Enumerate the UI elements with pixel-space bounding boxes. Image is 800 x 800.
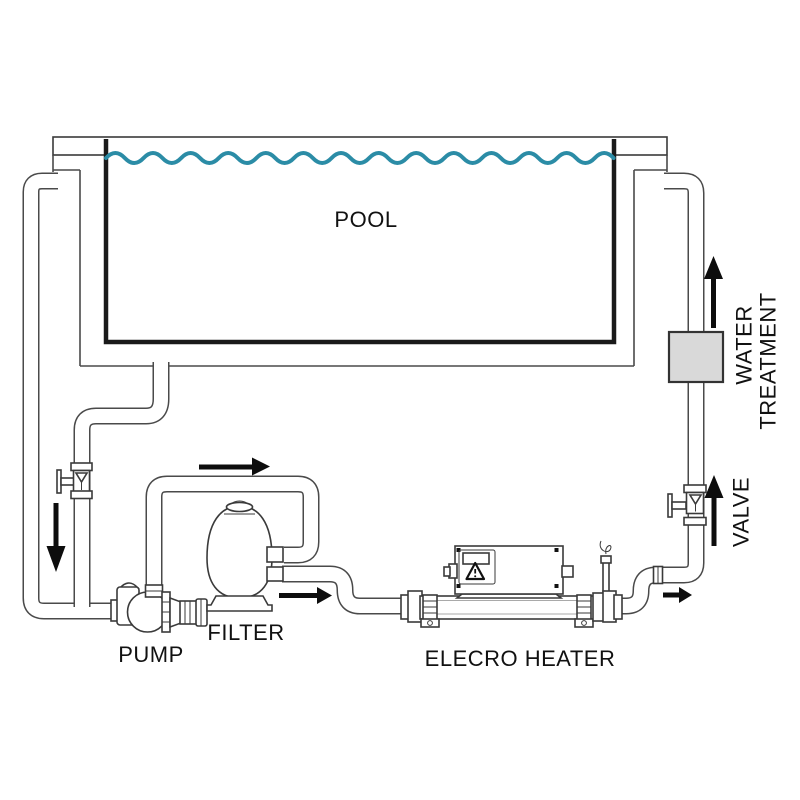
return-valve — [668, 485, 706, 525]
pump — [111, 583, 207, 632]
heater-tube — [420, 596, 595, 619]
flow-arrow-right-filter-out — [279, 587, 332, 604]
skimmer-suction-pipe — [31, 181, 113, 611]
sand-filter — [207, 501, 283, 611]
pool-basin — [106, 138, 614, 343]
flow-arrow-right-pump-loop — [199, 458, 270, 476]
filter-label: FILTER — [207, 620, 284, 645]
valve-label: VALVE — [729, 477, 754, 547]
pump-outlet-barrel — [180, 601, 197, 624]
heater-control-box — [444, 546, 573, 598]
valve-stem — [61, 478, 74, 485]
filter-inlet-port — [267, 547, 283, 562]
elecro-heater — [401, 541, 622, 627]
shutoff-valve-left — [57, 463, 92, 499]
flow-arrow-down-suction — [47, 503, 66, 572]
pool-label: POOL — [334, 207, 397, 232]
filter-to-heater-pipe — [282, 574, 407, 606]
filter-lid — [227, 503, 253, 512]
water-treatment-unit — [669, 332, 723, 382]
heater-label: ELECRO HEATER — [425, 646, 616, 671]
flow-arrow-up-valve — [705, 475, 724, 546]
diagram-canvas: POOL PUMP FILTER ELECRO HEATER VALVE WAT… — [0, 0, 800, 800]
pump-label: PUMP — [118, 642, 184, 667]
temperature-probe — [600, 541, 611, 594]
cable-gland-right — [562, 566, 573, 577]
filter-tank — [207, 506, 272, 598]
pipe-coupling — [654, 567, 663, 584]
flow-arrow-right-heater-out — [663, 587, 692, 603]
flow-arrow-up-treatment — [704, 256, 723, 328]
filter-outlet-port — [267, 567, 283, 581]
return-riser-pipe — [615, 181, 696, 606]
valve-stem — [672, 502, 686, 509]
water-treatment-label-line2: TREATMENT — [756, 292, 781, 429]
water-treatment-label-line1: WATER — [732, 305, 757, 385]
filter-base — [207, 596, 272, 611]
